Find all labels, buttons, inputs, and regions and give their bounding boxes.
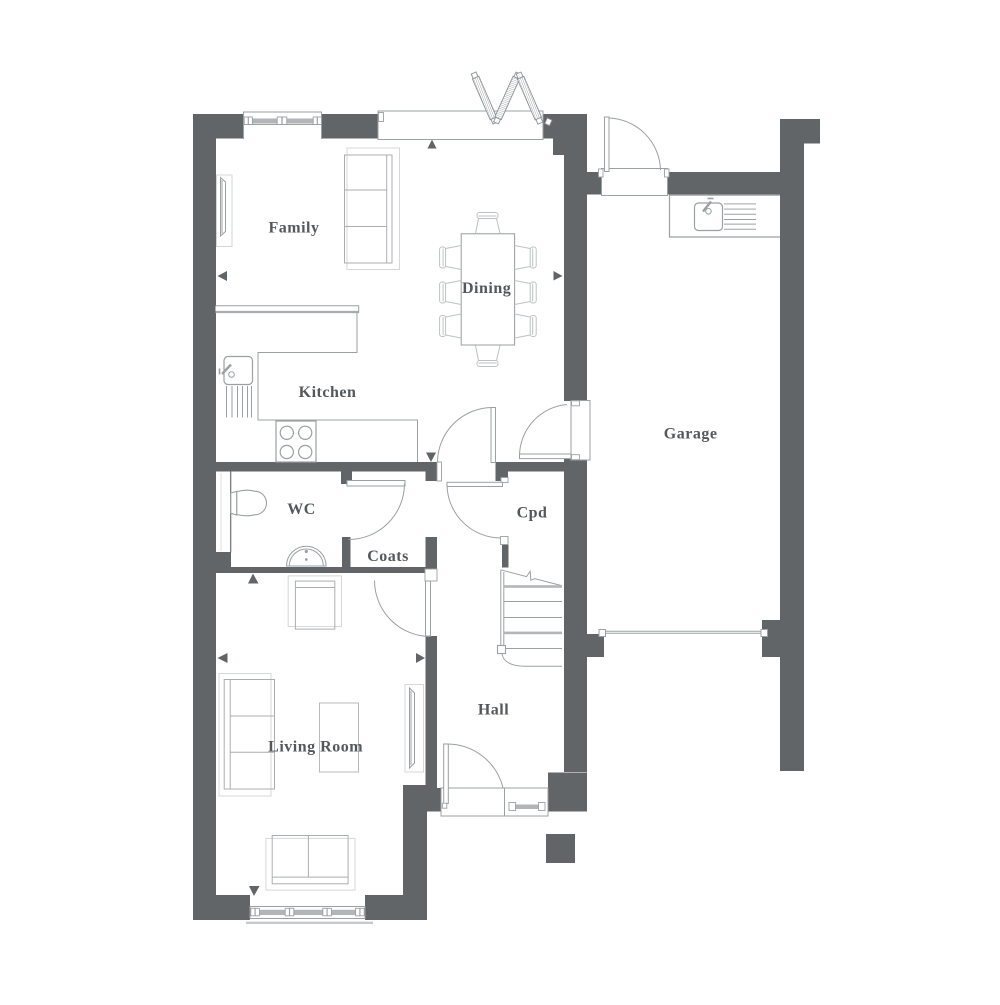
svg-text:WC: WC	[287, 501, 316, 518]
svg-text:Coats: Coats	[367, 548, 409, 565]
svg-text:Kitchen: Kitchen	[299, 384, 357, 401]
svg-text:Living Room: Living Room	[268, 739, 363, 756]
svg-text:Dining: Dining	[462, 280, 511, 297]
svg-text:Family: Family	[269, 220, 320, 237]
svg-text:Hall: Hall	[478, 702, 509, 719]
svg-text:Cpd: Cpd	[517, 505, 548, 522]
svg-text:Garage: Garage	[664, 426, 718, 443]
